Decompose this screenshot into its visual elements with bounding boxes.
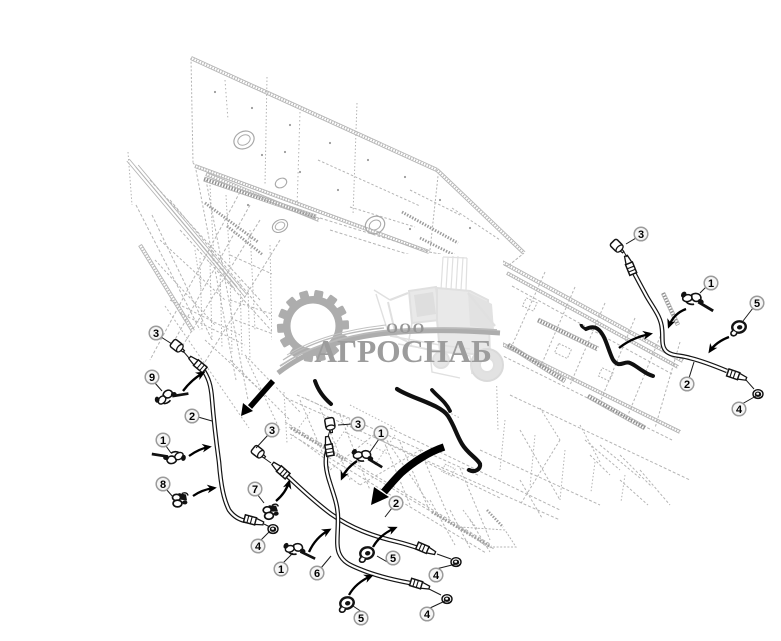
svg-text:8: 8 bbox=[160, 479, 166, 491]
svg-text:1: 1 bbox=[378, 428, 384, 440]
svg-text:4: 4 bbox=[736, 404, 743, 416]
svg-text:5: 5 bbox=[358, 613, 364, 625]
svg-text:4: 4 bbox=[433, 570, 440, 582]
svg-text:7: 7 bbox=[252, 484, 258, 496]
svg-text:1: 1 bbox=[160, 435, 166, 447]
svg-text:2: 2 bbox=[684, 379, 690, 391]
svg-text:2: 2 bbox=[189, 411, 195, 423]
svg-text:2: 2 bbox=[393, 498, 399, 510]
svg-text:АГРОСНАБ: АГРОСНАБ bbox=[314, 334, 492, 369]
svg-text:9: 9 bbox=[149, 372, 155, 384]
svg-text:1: 1 bbox=[708, 278, 714, 290]
svg-text:5: 5 bbox=[390, 553, 396, 565]
svg-text:6: 6 bbox=[314, 568, 320, 580]
svg-text:3: 3 bbox=[638, 229, 644, 241]
svg-text:1: 1 bbox=[278, 564, 284, 576]
svg-text:3: 3 bbox=[355, 419, 361, 431]
svg-text:5: 5 bbox=[754, 298, 760, 310]
svg-text:4: 4 bbox=[255, 541, 262, 553]
svg-text:3: 3 bbox=[269, 425, 275, 437]
svg-text:4: 4 bbox=[424, 609, 431, 621]
svg-text:3: 3 bbox=[153, 328, 159, 340]
